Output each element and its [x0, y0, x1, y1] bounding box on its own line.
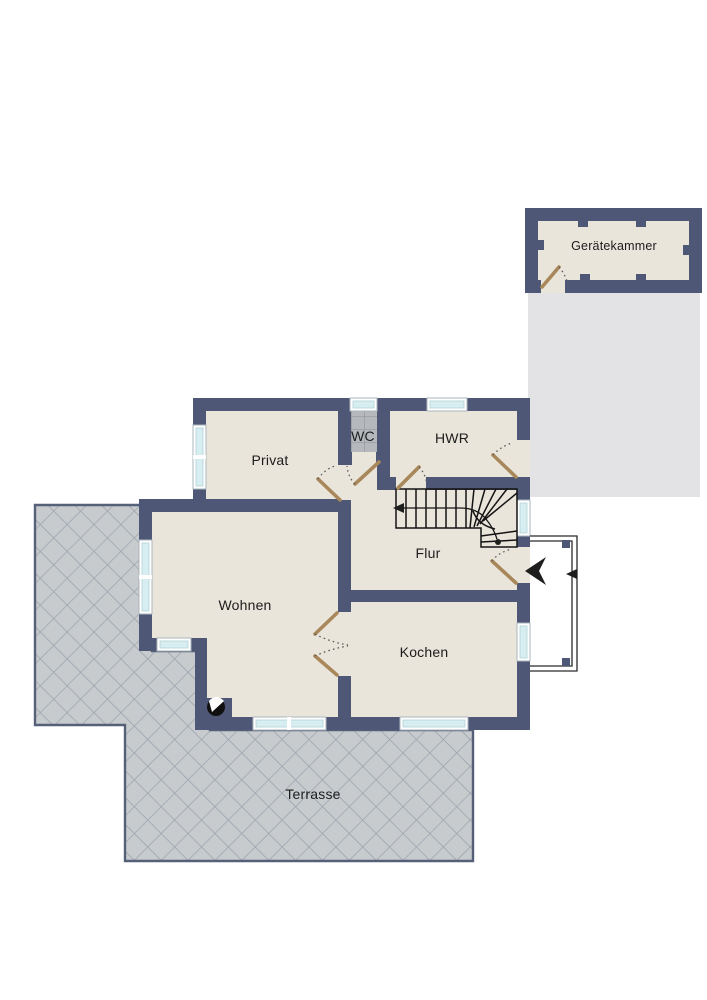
- canopy-post: [562, 658, 570, 666]
- floorplan-drawing: [0, 0, 707, 1000]
- stair-walkline-start-dot: [495, 539, 501, 545]
- room-label-terrasse: Terrasse: [285, 786, 340, 802]
- floorplan-canvas: Gerätekammer Privat WC HWR Flur Wohnen K…: [0, 0, 707, 1000]
- window-flur-east: [517, 500, 530, 536]
- house-shadow: [528, 293, 700, 497]
- room-label-kochen: Kochen: [400, 644, 449, 660]
- window-wohnen-bump-south: [157, 638, 191, 651]
- window-wohnen-south: [253, 717, 326, 730]
- window-hwr-north: [427, 398, 467, 411]
- canopy: [530, 536, 577, 671]
- window-kochen-south: [400, 717, 468, 730]
- canopy-post: [562, 540, 570, 548]
- room-label-wc: WC: [351, 428, 375, 444]
- window-kochen-east: [517, 623, 530, 661]
- window-privat-west: [193, 425, 206, 489]
- room-label-wohnen: Wohnen: [218, 597, 271, 613]
- room-label-privat: Privat: [252, 452, 289, 468]
- window-wc-north: [350, 398, 377, 411]
- room-label-geraetekammer: Gerätekammer: [571, 239, 657, 253]
- room-label-hwr: HWR: [435, 430, 469, 446]
- window-wohnen-west: [139, 540, 152, 614]
- room-label-flur: Flur: [416, 545, 441, 561]
